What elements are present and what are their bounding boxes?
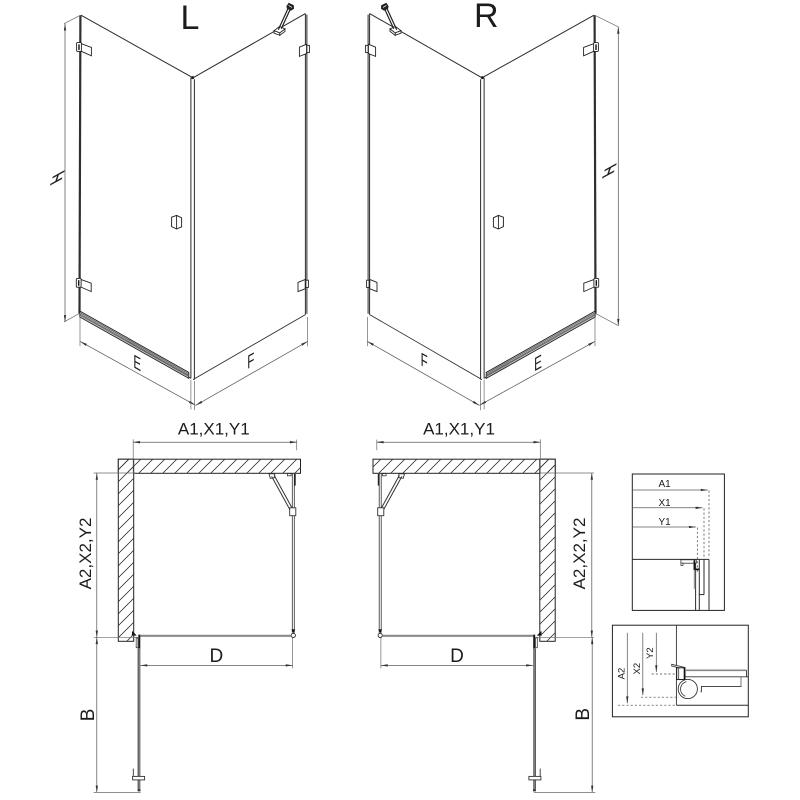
svg-text:F: F (421, 349, 428, 374)
svg-text:B: B (78, 709, 99, 722)
svg-text:A2,X2,Y2: A2,X2,Y2 (570, 518, 589, 590)
svg-text:E: E (534, 351, 542, 376)
svg-text:X1: X1 (659, 498, 672, 509)
svg-text:Y1: Y1 (659, 517, 672, 528)
svg-text:E: E (133, 351, 141, 376)
svg-text:R: R (474, 0, 499, 35)
svg-text:A2: A2 (617, 668, 628, 680)
svg-text:A1,X1,Y1: A1,X1,Y1 (178, 420, 250, 439)
svg-text:A1: A1 (659, 479, 672, 490)
svg-text:B: B (573, 708, 594, 721)
svg-text:D: D (450, 646, 464, 667)
svg-text:F: F (247, 349, 254, 374)
svg-text:L: L (181, 0, 200, 37)
svg-text:Y2: Y2 (645, 647, 656, 659)
svg-text:A2,X2,Y2: A2,X2,Y2 (76, 518, 95, 590)
svg-text:A1,X1,Y1: A1,X1,Y1 (423, 420, 495, 439)
svg-text:X2: X2 (632, 663, 643, 675)
svg-text:D: D (210, 646, 224, 667)
